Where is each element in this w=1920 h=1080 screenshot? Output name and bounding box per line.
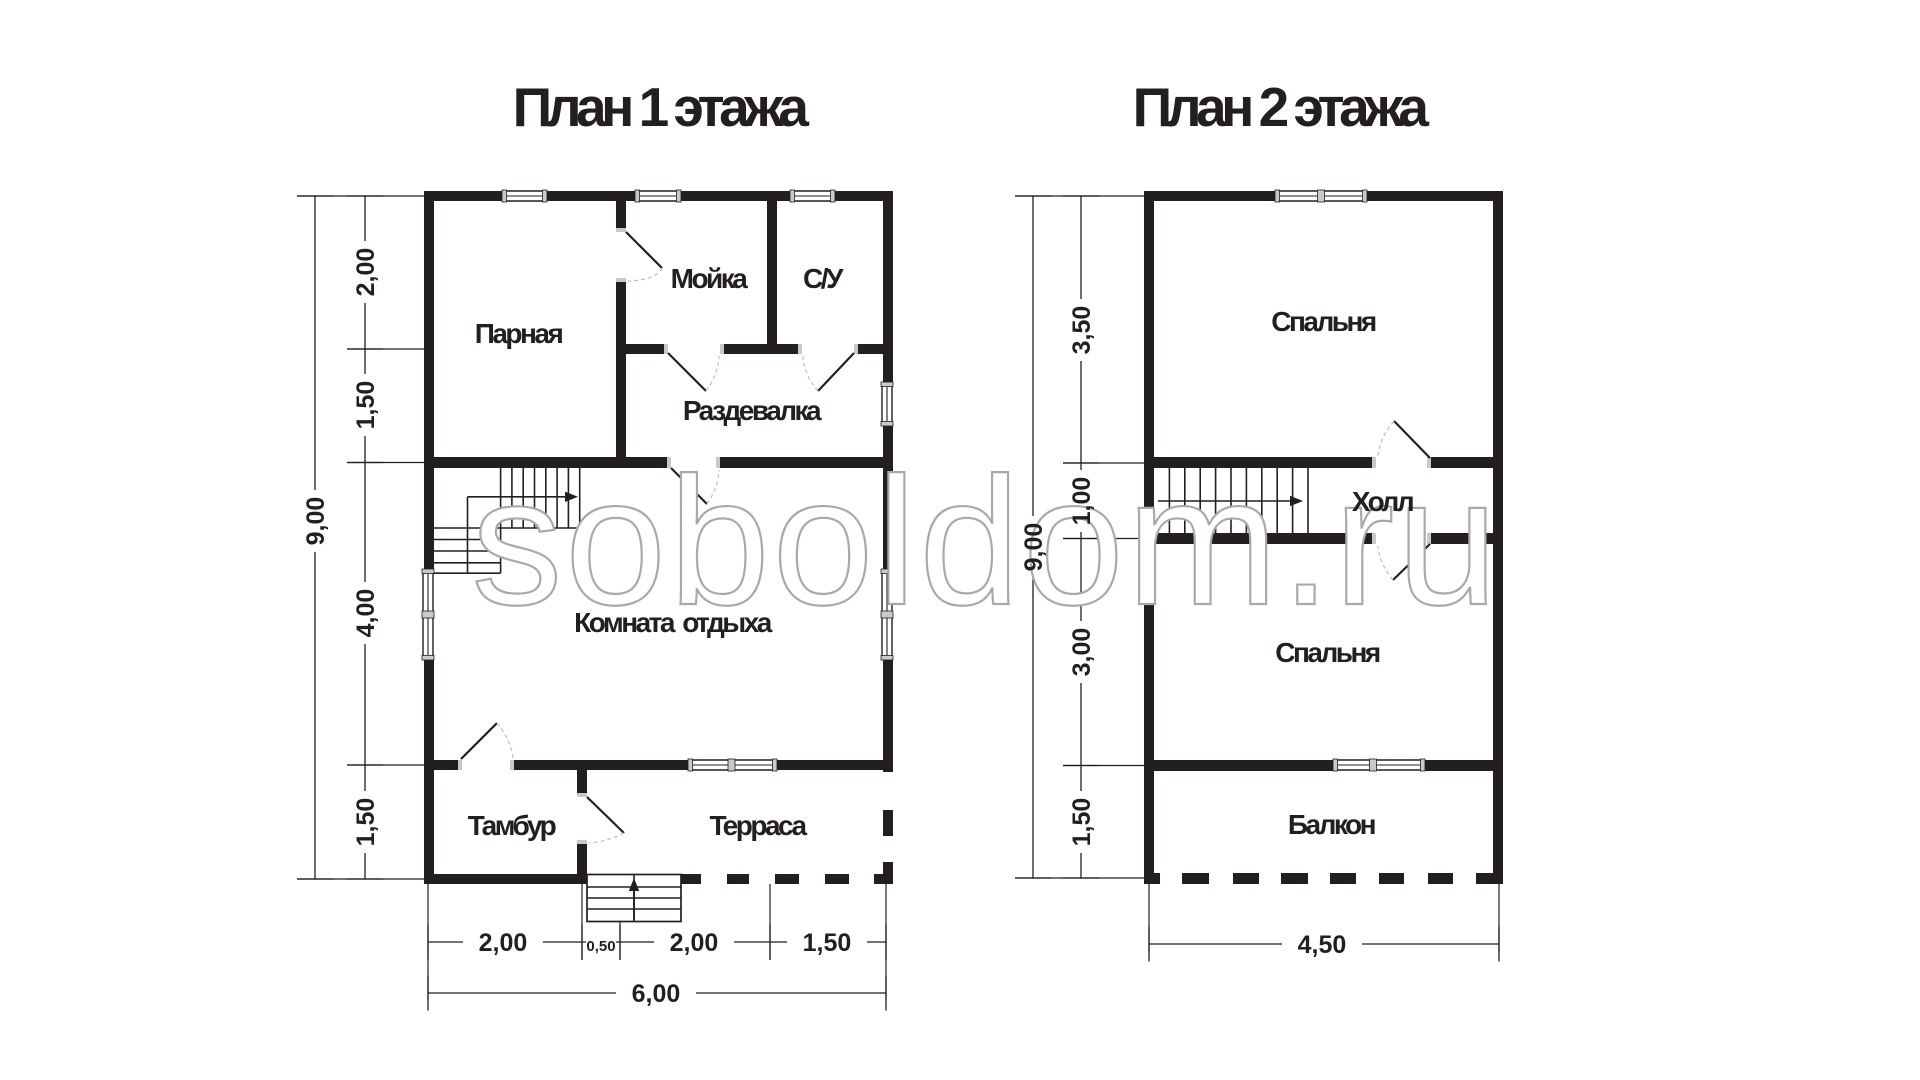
svg-text:3,50: 3,50 <box>1068 306 1096 355</box>
svg-text:6,00: 6,00 <box>632 980 681 1008</box>
svg-text:1,50: 1,50 <box>352 381 380 430</box>
svg-text:План 2 этажа: План 2 этажа <box>1133 76 1430 138</box>
svg-text:1,50: 1,50 <box>1068 798 1096 847</box>
svg-text:2,00: 2,00 <box>352 248 380 297</box>
svg-text:2,00: 2,00 <box>670 929 719 957</box>
svg-text:Парная: Парная <box>475 318 563 349</box>
svg-text:1,00: 1,00 <box>1068 477 1096 526</box>
svg-text:Терраса: Терраса <box>709 810 807 841</box>
svg-text:4,00: 4,00 <box>352 589 380 638</box>
svg-text:Мойка: Мойка <box>671 263 749 294</box>
svg-text:1,50: 1,50 <box>803 929 852 957</box>
svg-text:0,50: 0,50 <box>586 938 615 955</box>
svg-text:Балкон: Балкон <box>1288 809 1375 840</box>
svg-text:1,50: 1,50 <box>352 798 380 847</box>
svg-text:Спальня: Спальня <box>1271 306 1376 337</box>
svg-text:С/У: С/У <box>803 263 844 294</box>
svg-text:3,00: 3,00 <box>1068 628 1096 677</box>
svg-text:9,00: 9,00 <box>302 497 330 546</box>
svg-text:Комната отдыха: Комната отдыха <box>574 607 773 638</box>
svg-text:4,50: 4,50 <box>1298 931 1347 959</box>
svg-text:Тамбур: Тамбур <box>468 810 556 841</box>
svg-text:План 1 этажа: План 1 этажа <box>513 76 810 138</box>
svg-text:2,00: 2,00 <box>479 929 528 957</box>
svg-text:Холл: Холл <box>1352 486 1413 517</box>
svg-text:Раздевалка: Раздевалка <box>683 395 822 426</box>
svg-text:Спальня: Спальня <box>1275 637 1380 668</box>
svg-text:9,00: 9,00 <box>1020 523 1048 572</box>
